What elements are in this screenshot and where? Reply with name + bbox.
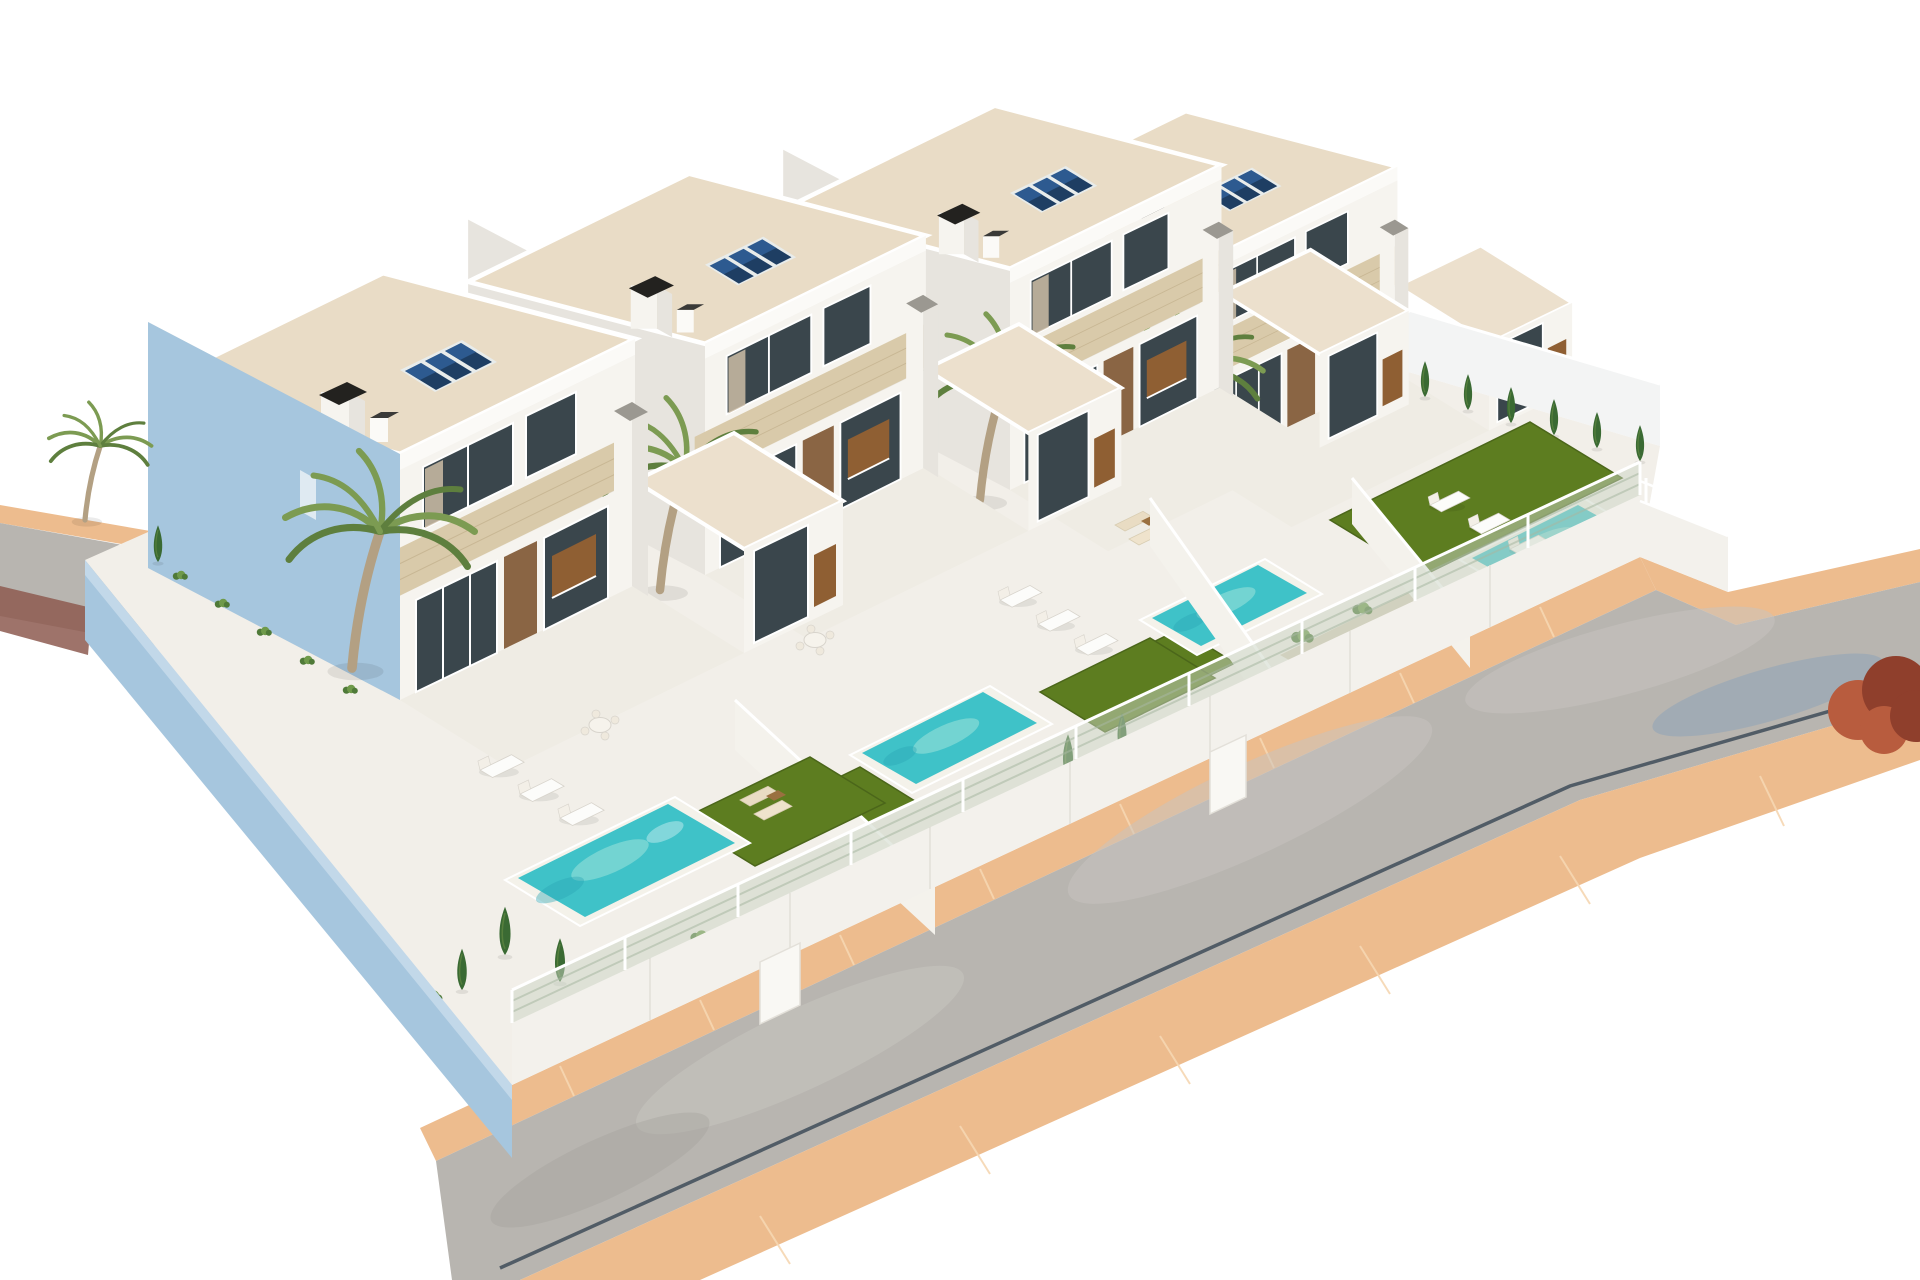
render-canvas [0,0,1920,1280]
villa-development-render [0,0,1920,1280]
palm-tree-0 [49,402,152,526]
